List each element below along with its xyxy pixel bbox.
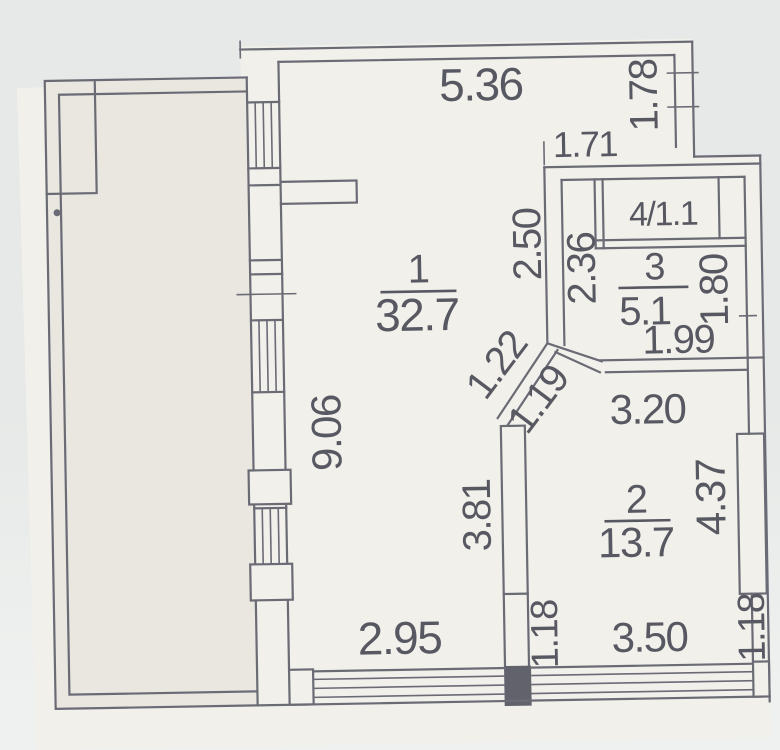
room3-number: 3 (644, 246, 665, 288)
dim-top-width: 5.36 (439, 58, 523, 111)
dim-room2-top-width: 3.20 (609, 385, 686, 433)
bottom-pier-right (753, 661, 770, 696)
wall-pier-upper (249, 470, 292, 505)
balcony (45, 77, 258, 708)
wall-stub (281, 181, 357, 204)
dim-room3-bottom-width: 1.99 (642, 317, 715, 362)
floor-plan: 1 32.7 2 13.7 3 5.1 4/1.1 5.36 1.78 1.71… (16, 31, 775, 750)
dim-right-upper-height: 1.78 (621, 59, 666, 132)
dim-room2-bottom-width: 3.50 (611, 613, 688, 661)
room1-number: 1 (407, 247, 429, 291)
dim-bottom-wall-right: 1.18 (731, 593, 774, 662)
floor-plan-image: 1 32.7 2 13.7 3 5.1 4/1.1 5.36 1.78 1.71… (0, 0, 780, 750)
room3-label-divider (618, 287, 688, 288)
bottom-pier-left (289, 669, 314, 704)
dim-room2-right-height: 4.37 (686, 459, 734, 536)
room2-number: 2 (625, 478, 647, 522)
dim-room3-left-height: 2.36 (559, 232, 604, 305)
dim-room1-right-upper: 2.50 (505, 208, 550, 281)
wall-pier-lower (250, 564, 293, 601)
dim-room3-right-height: 1.80 (692, 254, 737, 327)
dim-entry-top-width: 1.71 (553, 123, 618, 165)
dim-room1-bottom-width: 2.95 (357, 611, 441, 664)
door-leaf (501, 426, 528, 594)
room2-area: 13.7 (598, 518, 675, 566)
dim-room1-left-height: 9.06 (302, 395, 350, 472)
dim-room1-right-lower: 3.81 (455, 479, 500, 552)
dim-bottom-wall-left: 1.18 (524, 600, 567, 669)
room4-label: 4/1.1 (629, 195, 698, 234)
room1-area: 32.7 (375, 288, 459, 341)
